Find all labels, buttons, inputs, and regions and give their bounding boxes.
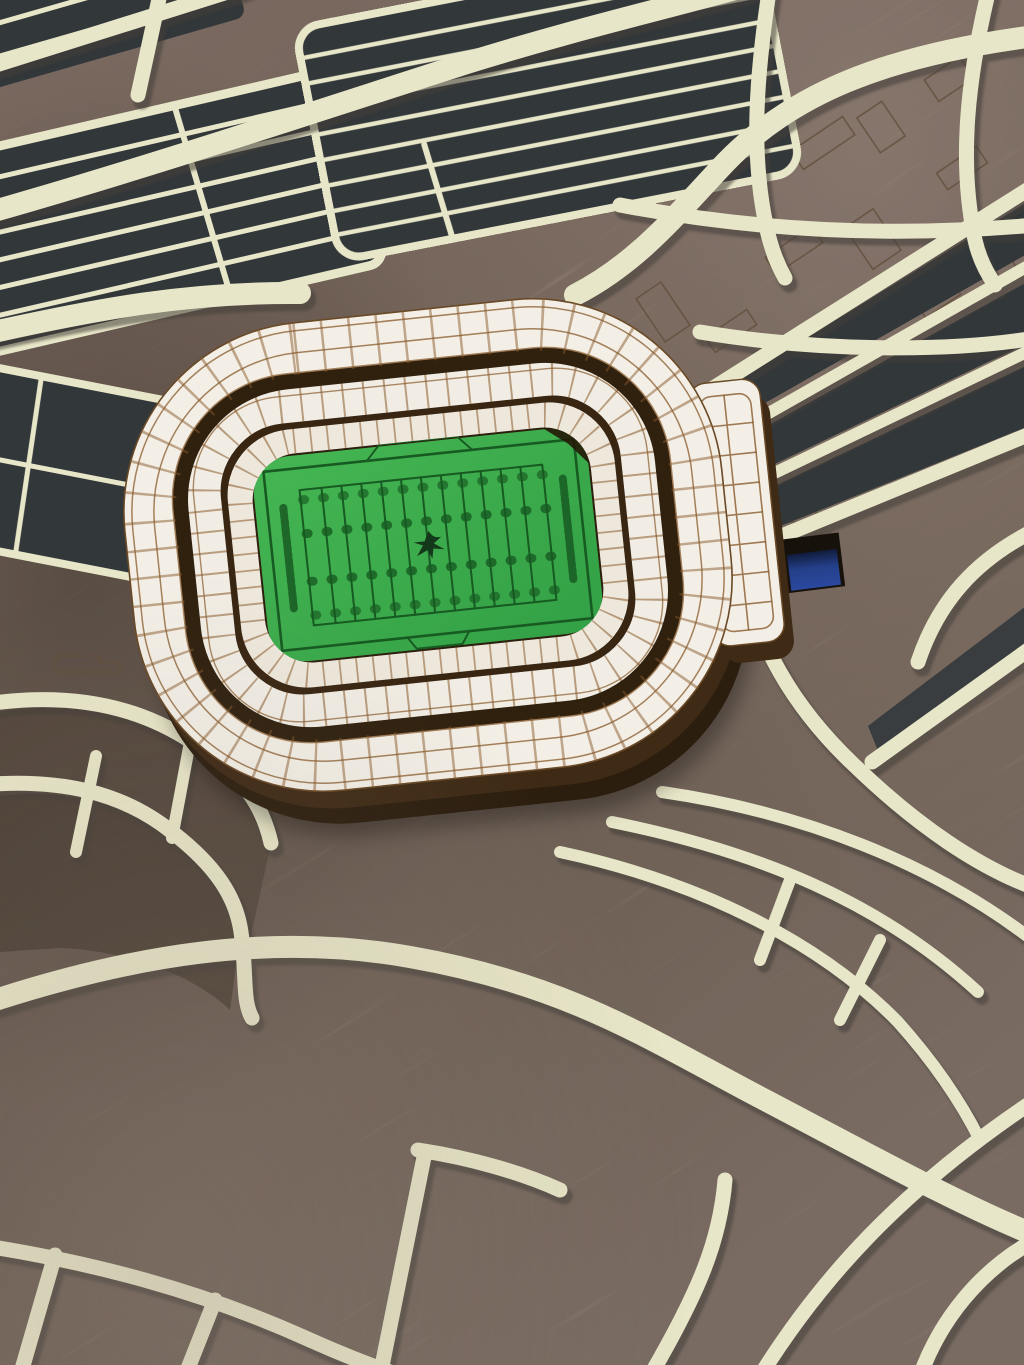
depth-of-field-haze [0,0,1024,1365]
wood-map-photo [0,0,1024,1365]
wood-map-canvas [0,0,1024,1365]
